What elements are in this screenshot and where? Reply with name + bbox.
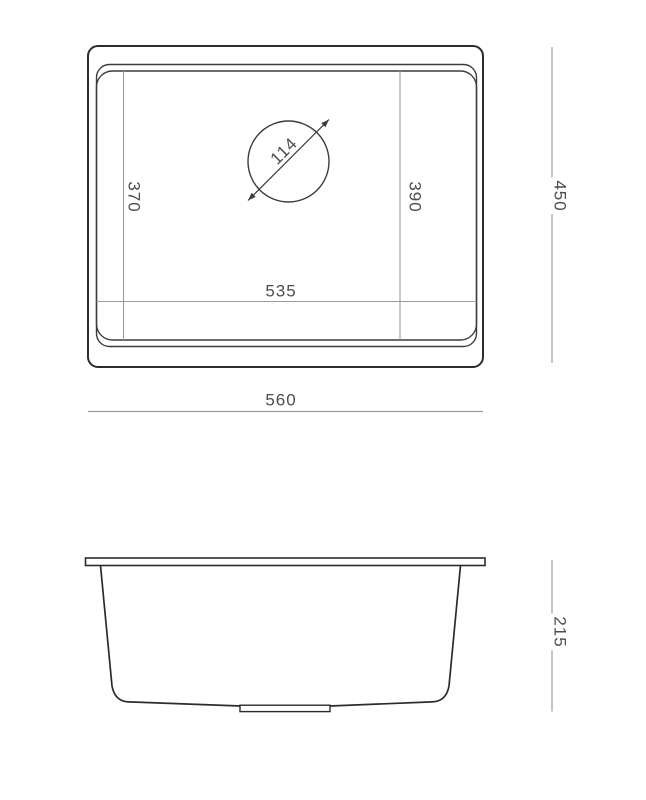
sink-technical-drawing: 114 370 390 535 560 450 215: [0, 0, 646, 800]
side-view-left-wall: [101, 566, 241, 707]
side-height-label: 215: [551, 613, 570, 650]
overall-width-label: 560: [265, 391, 296, 410]
drawing-linework: [0, 0, 646, 800]
top-view: [88, 46, 552, 412]
bowl-depth-right-label: 390: [406, 181, 425, 212]
bowl-width-label: 535: [265, 282, 296, 301]
bowl-depth-left-label: 370: [125, 181, 144, 212]
side-view: [86, 558, 553, 712]
side-view-drain-fitting: [240, 705, 330, 711]
drain-hole-circle: [248, 121, 329, 202]
side-view-right-wall: [330, 566, 461, 707]
side-view-lip: [86, 558, 486, 566]
overall-depth-label: 450: [551, 177, 570, 214]
